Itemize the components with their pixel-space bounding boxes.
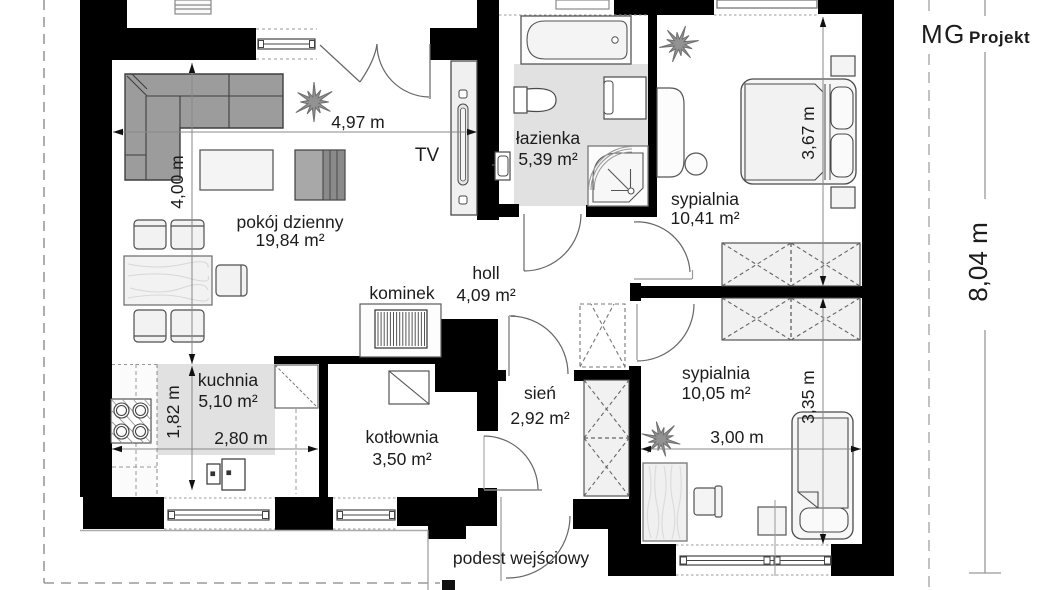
svg-text:4,97 m: 4,97 m [331,112,385,132]
svg-text:4,09 m²: 4,09 m² [456,285,515,305]
svg-text:podest wejściowy: podest wejściowy [453,548,589,568]
svg-text:3,35 m: 3,35 m [798,370,818,424]
svg-text:kominek: kominek [369,283,434,303]
svg-text:10,05 m²: 10,05 m² [681,383,750,403]
svg-text:1,82 m: 1,82 m [163,385,183,439]
svg-text:Projekt: Projekt [969,28,1030,47]
svg-text:5,39 m²: 5,39 m² [518,149,577,169]
svg-text:2,80 m: 2,80 m [214,428,268,448]
svg-text:3,67 m: 3,67 m [798,106,818,160]
svg-text:2,92 m²: 2,92 m² [510,408,569,428]
svg-text:MG: MG [921,19,966,49]
svg-text:4,00 m: 4,00 m [167,155,187,209]
svg-text:pokój dzienny: pokój dzienny [236,212,343,232]
svg-text:łazienka: łazienka [516,128,580,148]
svg-text:sień: sień [524,383,556,403]
svg-text:3,00 m: 3,00 m [710,427,764,447]
svg-text:holl: holl [472,263,499,283]
svg-text:sypialnia: sypialnia [682,363,750,383]
svg-text:19,84 m²: 19,84 m² [255,230,324,250]
svg-text:sypialnia: sypialnia [671,189,739,209]
svg-text:3,50 m²: 3,50 m² [372,449,431,469]
svg-text:TV: TV [415,145,440,166]
svg-text:5,10 m²: 5,10 m² [198,391,257,411]
svg-text:8,04 m: 8,04 m [963,222,993,302]
svg-text:kuchnia: kuchnia [198,370,259,390]
svg-text:10,41 m²: 10,41 m² [670,208,739,228]
svg-text:kotłownia: kotłownia [366,427,439,447]
